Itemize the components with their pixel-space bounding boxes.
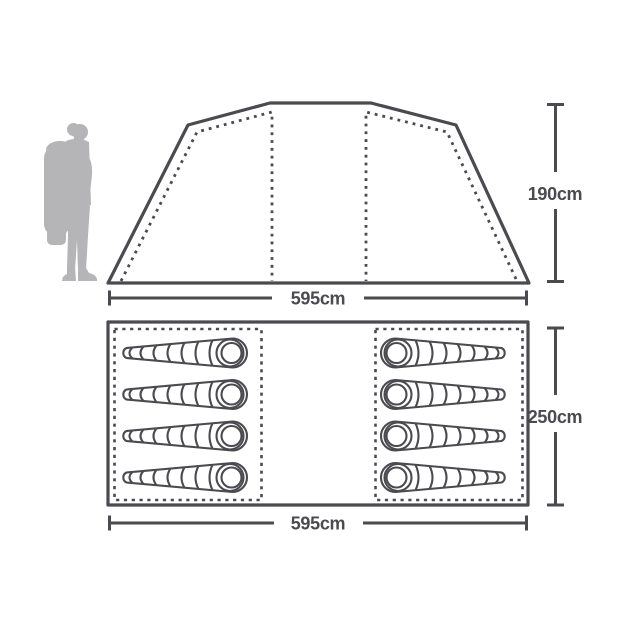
- side-width-dimension: 595cm: [110, 289, 527, 309]
- sleeping-bag: [123, 339, 247, 368]
- floor-width-dimension: 595cm: [110, 514, 527, 534]
- height-label: 190cm: [528, 184, 583, 204]
- inner-tent-left-dashed: [121, 112, 272, 281]
- sleeping-bag: [123, 463, 247, 492]
- tent-outer-profile: [108, 103, 529, 283]
- person-front-foot: [78, 268, 97, 281]
- backpack-lid: [46, 141, 74, 159]
- floor-depth-dimension: 250cm: [528, 328, 583, 505]
- inner-tent-right-dashed: [366, 112, 516, 281]
- person-back-foot: [62, 267, 76, 281]
- sleeping-bag: [123, 380, 247, 409]
- depth-label: 250cm: [528, 407, 583, 427]
- sleeping-bags: [123, 339, 504, 493]
- height-dimension: 190cm: [528, 105, 583, 282]
- floor-width-label: 595cm: [291, 514, 346, 534]
- tent-floor-plan: [108, 322, 528, 505]
- person-head-back: [67, 123, 80, 136]
- sleeping-bag: [381, 422, 505, 451]
- person-silhouette: [44, 123, 97, 281]
- person-legs: [67, 204, 90, 270]
- tent-dimensions-figure: 595cm 190cm 595cm 250cm: [0, 0, 638, 638]
- backpack: [44, 146, 70, 236]
- tent-side-elevation: [108, 103, 529, 283]
- sleeping-bag: [381, 339, 505, 368]
- person-arm: [83, 152, 92, 202]
- sleeping-bag: [123, 422, 247, 451]
- sleeping-bag: [381, 380, 505, 409]
- side-width-label: 595cm: [291, 289, 346, 309]
- sleeping-bag: [381, 463, 505, 492]
- backpack-flap: [47, 228, 66, 245]
- tent-diagram: 595cm 190cm 595cm 250cm: [0, 0, 638, 638]
